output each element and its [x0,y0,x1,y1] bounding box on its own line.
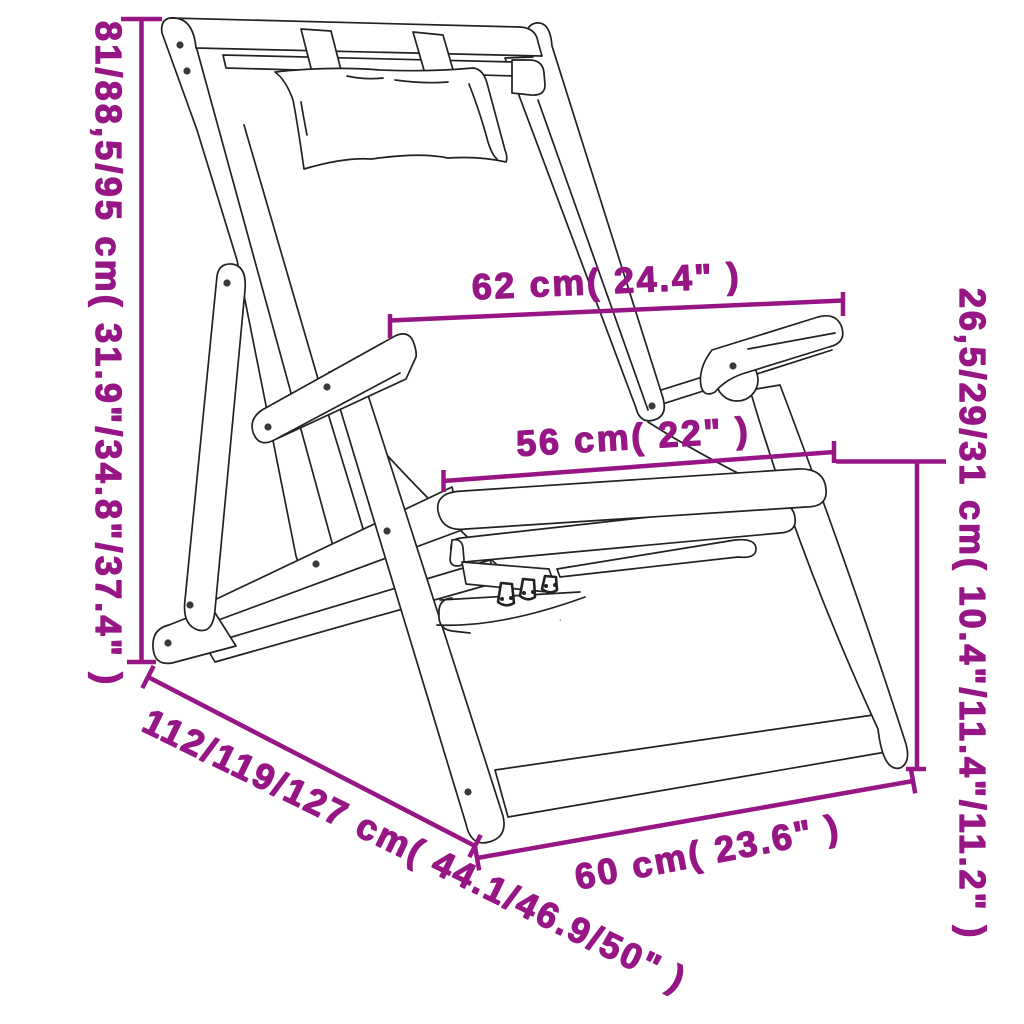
svg-text:81/88,5/95 cm( 31.9"/34.8"/37.: 81/88,5/95 cm( 31.9"/34.8"/37.4" ) [88,21,129,687]
svg-text:26,5/29/31 cm( 10.4"/11.4"/11.: 26,5/29/31 cm( 10.4"/11.4"/11.2" ) [952,288,993,940]
